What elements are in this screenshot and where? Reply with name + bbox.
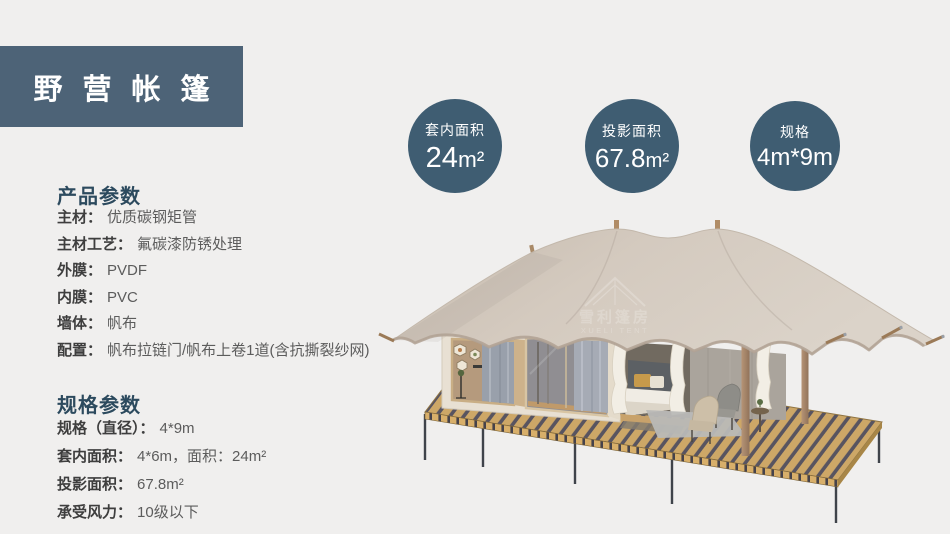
badge-size-value: 4m*9m [757,144,833,171]
param-row-wall: 墙体：帆布 [57,311,370,338]
tent-cabin [442,333,620,422]
param-row-inner-membrane: 内膜：PVC [57,285,370,312]
badge-inner-area-value: 24 [426,142,458,174]
badge-size-label: 规格 [780,122,810,142]
badge-size: 规格 4m*9m [750,101,840,191]
badge-projection-area-unit: m² [645,150,669,172]
badge-projection-area: 投影面积 67.8m² [585,99,679,193]
svg-text:XUELI TENT: XUELI TENT [581,326,649,335]
product-sheet: 野营帐篷 套内面积 24m² 投影面积 67.8m² 规格 4m*9m 产品参数… [0,0,950,534]
spec-row-size: 规格（直径）：4*9m [57,415,266,443]
tent-render: 雪利篷房 XUELI TENT [378,204,950,534]
param-row-material: 主材：优质碳钢矩管 [57,205,370,232]
roof-post-right [802,348,809,424]
badge-inner-area: 套内面积 24m² [408,99,502,193]
page-title-box: 野营帐篷 [0,46,243,127]
page-title: 野营帐篷 [33,66,229,108]
tent-roof [379,229,945,354]
badge-projection-area-value: 67.8 [595,143,646,173]
svg-text:雪利篷房: 雪利篷房 [579,308,651,326]
spec-row-wind: 承受风力：10级以下 [57,499,266,527]
badge-projection-area-label: 投影面积 [602,121,662,141]
param-row-config: 配置：帆布拉链门/帆布上卷1道(含抗撕裂纱网) [57,338,370,365]
product-params-list: 主材：优质碳钢矩管 主材工艺：氟碳漆防锈处理 外膜：PVDF 内膜：PVC 墙体… [57,205,370,364]
spec-params-heading: 规格参数 [57,389,141,418]
param-row-outer-membrane: 外膜：PVDF [57,258,370,285]
param-row-material-craft: 主材工艺：氟碳漆防锈处理 [57,232,370,259]
spec-row-projection-area: 投影面积：67.8m² [57,471,266,499]
spec-row-inner-area: 套内面积：4*6m，面积：24m² [57,443,266,471]
badge-inner-area-label: 套内面积 [425,120,485,140]
roof-post-front [742,345,750,456]
badge-inner-area-unit: m² [458,147,484,172]
spec-params-list: 规格（直径）：4*9m 套内面积：4*6m，面积：24m² 投影面积：67.8m… [57,415,266,527]
